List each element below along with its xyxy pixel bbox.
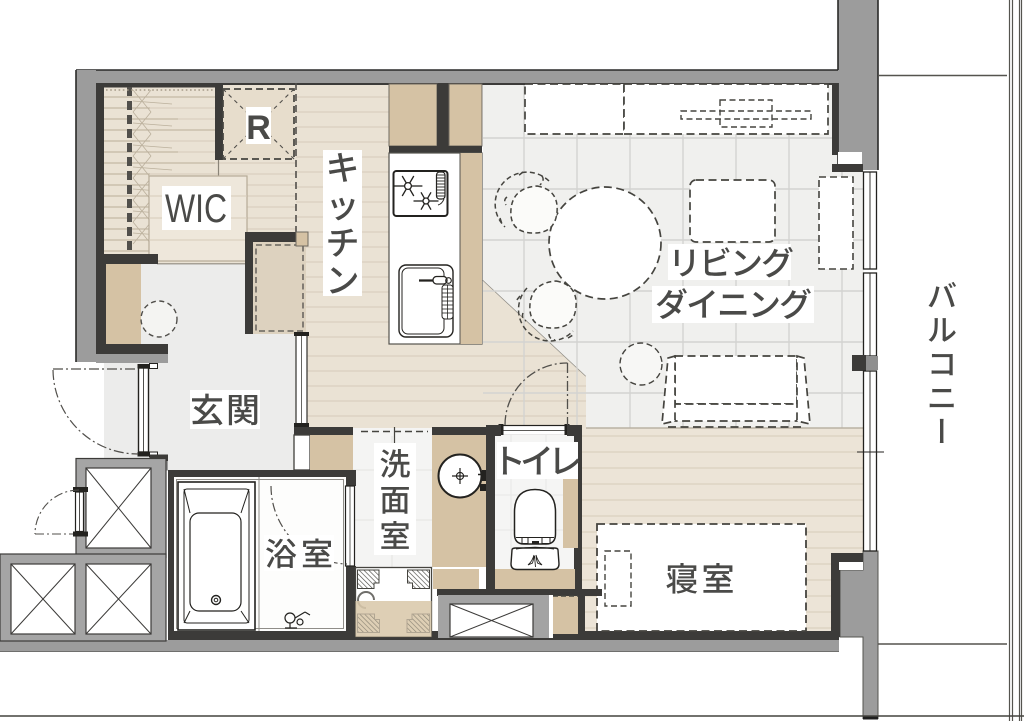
- svg-text:R: R: [246, 109, 271, 147]
- svg-text:WIC: WIC: [165, 187, 227, 231]
